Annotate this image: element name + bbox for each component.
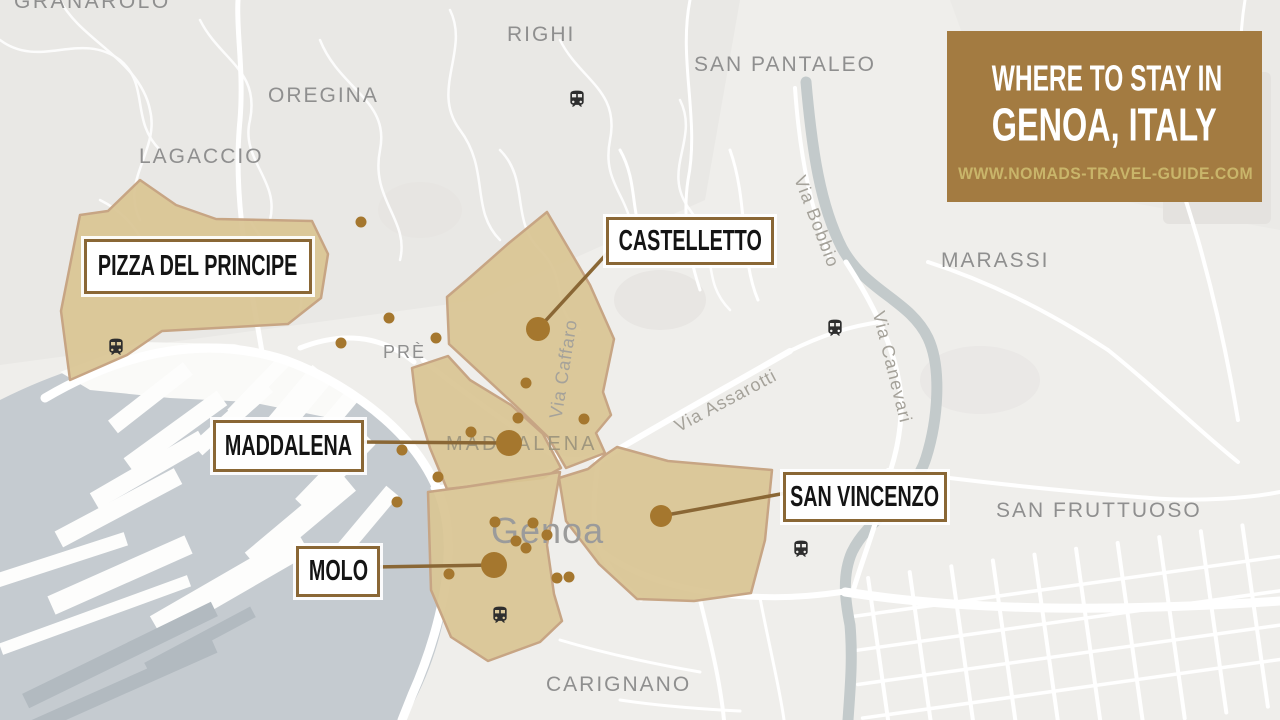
hills-patch-ne bbox=[950, 0, 1280, 230]
label-text-san-vincenzo: SAN VINCENZO bbox=[791, 481, 940, 514]
street-label-via-caffaro: Via Caffaro bbox=[546, 318, 582, 420]
connector-molo bbox=[372, 565, 494, 567]
train-station-icon bbox=[106, 337, 126, 357]
area-label-oregina: OREGINA bbox=[268, 84, 379, 108]
poi-dot bbox=[466, 427, 477, 438]
roads bbox=[0, 0, 1280, 720]
area-label-marassi: MARASSI bbox=[941, 249, 1050, 273]
district-polygon-san-vincenzo bbox=[559, 447, 772, 601]
poi-dot bbox=[490, 517, 501, 528]
connector-castelletto bbox=[538, 248, 612, 329]
poi-dot bbox=[336, 338, 347, 349]
train-station-icon bbox=[825, 318, 845, 338]
title-card: WHERE TO STAY IN GENOA, ITALY WWW.NOMADS… bbox=[947, 31, 1262, 202]
area-label-granarolo: GRANAROLO bbox=[14, 0, 171, 14]
genoa-map-infographic: GRANAROLO RIGHI SAN PANTALEO OREGINA LAG… bbox=[0, 0, 1280, 720]
docks bbox=[0, 602, 256, 720]
maddalena-marker-dot bbox=[496, 430, 522, 456]
area-label-pre: PRÈ bbox=[383, 342, 426, 363]
neighborhood-labels-layer: PIZZA DEL PRINCIPE CASTELLETTO MADDALENA… bbox=[0, 0, 1280, 720]
label-box-pizza-del-principe: PIZZA DEL PRINCIPE bbox=[84, 239, 312, 294]
label-text-pizza-del-principe: PIZZA DEL PRINCIPE bbox=[98, 250, 297, 283]
san-vincenzo-marker-dot bbox=[650, 505, 672, 527]
poi-dot bbox=[564, 572, 575, 583]
map-text-layer: GRANAROLO RIGHI SAN PANTALEO OREGINA LAG… bbox=[0, 0, 1280, 720]
label-box-molo: MOLO bbox=[296, 546, 380, 597]
poi-dot bbox=[513, 413, 524, 424]
area-label-carignano: CARIGNANO bbox=[546, 673, 691, 697]
marassi-blocks bbox=[1163, 72, 1271, 224]
district-polygon-principe bbox=[61, 180, 328, 380]
harbor-water bbox=[0, 350, 450, 720]
poi-dot bbox=[511, 536, 522, 547]
city-label-genoa: Genoa bbox=[491, 510, 604, 552]
street-label-via-bobbio: Via Bobbio bbox=[789, 173, 843, 271]
label-text-molo: MOLO bbox=[308, 555, 367, 588]
building-patch bbox=[378, 182, 462, 238]
street-label-via-canevari: Via Canevari bbox=[868, 309, 916, 425]
label-box-castelletto: CASTELLETTO bbox=[606, 217, 774, 265]
area-label-lagaccio: LAGACCIO bbox=[139, 145, 264, 169]
poi-dot bbox=[528, 518, 539, 529]
district-polygon-molo bbox=[428, 472, 562, 661]
label-text-maddalena: MADDALENA bbox=[225, 430, 352, 463]
port-terminal bbox=[60, 342, 350, 418]
piers bbox=[0, 356, 399, 655]
poi-dot bbox=[431, 333, 442, 344]
castelletto-marker-dot bbox=[526, 317, 550, 341]
map-canvas bbox=[0, 0, 1280, 720]
poi-dot bbox=[552, 573, 563, 584]
title-website: WWW.NOMADS-TRAVEL-GUIDE.COM bbox=[947, 164, 1262, 184]
area-label-righi: RIGHI bbox=[507, 23, 575, 47]
train-station-icon bbox=[791, 539, 811, 559]
markers-layer bbox=[0, 0, 1280, 720]
poi-dot bbox=[384, 313, 395, 324]
poi-dot bbox=[433, 472, 444, 483]
connector-maddalena bbox=[357, 442, 509, 443]
area-label-san-pantaleo: SAN PANTALEO bbox=[694, 53, 876, 77]
map-background bbox=[0, 0, 1280, 720]
poi-dot bbox=[521, 543, 532, 554]
building-patch bbox=[920, 346, 1040, 414]
street-label-via-assarotti: Via Assarotti bbox=[671, 365, 780, 436]
title-line2: GENOA, ITALY bbox=[947, 101, 1262, 148]
connector-san-vincenzo bbox=[661, 493, 786, 516]
label-box-maddalena: MADDALENA bbox=[213, 420, 364, 472]
connector-lines bbox=[357, 248, 786, 567]
poi-dot bbox=[542, 530, 553, 541]
bisagno-river bbox=[806, 82, 937, 720]
poi-dot bbox=[392, 497, 403, 508]
poi-dot bbox=[356, 217, 367, 228]
area-label-san-fruttuoso: SAN FRUTTUOSO bbox=[996, 499, 1202, 523]
area-label-maddalena: MADDALENA bbox=[446, 433, 597, 456]
poi-dot bbox=[397, 445, 408, 456]
train-station-icon bbox=[490, 605, 510, 625]
hills-patch bbox=[0, 0, 740, 365]
label-box-san-vincenzo: SAN VINCENZO bbox=[783, 472, 947, 522]
building-patch bbox=[614, 270, 706, 330]
district-polygon-maddalena bbox=[412, 356, 561, 489]
poi-dot bbox=[579, 414, 590, 425]
train-station-icon bbox=[567, 89, 587, 109]
title-line1: WHERE TO STAY IN bbox=[947, 62, 1262, 98]
district-polygon-castelletto bbox=[447, 212, 614, 468]
label-text-castelletto: CASTELLETTO bbox=[618, 225, 761, 258]
poi-dot bbox=[521, 378, 532, 389]
molo-marker-dot bbox=[481, 552, 507, 578]
poi-dot bbox=[444, 569, 455, 580]
